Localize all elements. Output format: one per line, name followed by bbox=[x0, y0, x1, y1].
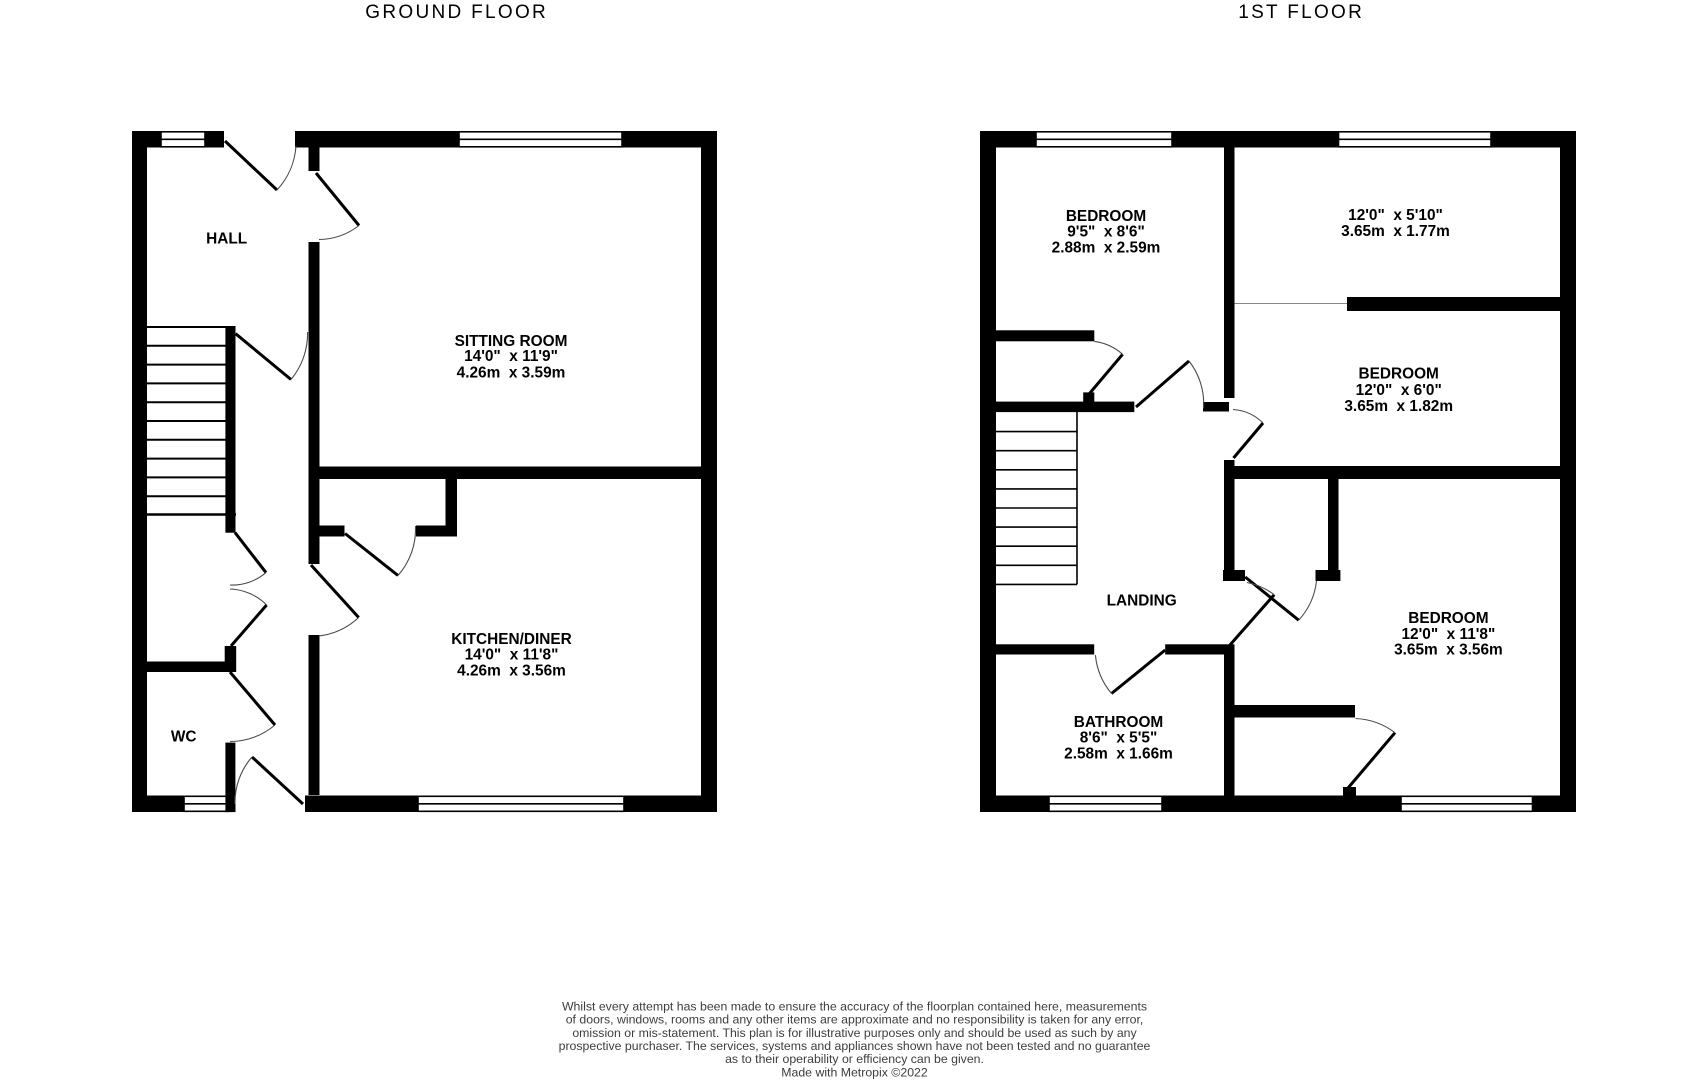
svg-text:2.88m x 2.59m: 2.88m x 2.59m bbox=[1052, 239, 1161, 256]
svg-text:HALL: HALL bbox=[206, 231, 247, 248]
svg-text:BEDROOM: BEDROOM bbox=[1066, 208, 1146, 225]
svg-text:Whilst every attempt has been: Whilst every attempt has been made to en… bbox=[562, 999, 1147, 1013]
svg-text:14'0" x 11'9": 14'0" x 11'9" bbox=[464, 348, 558, 365]
svg-text:9'5" x 8'6": 9'5" x 8'6" bbox=[1067, 223, 1145, 240]
svg-text:2.58m x 1.66m: 2.58m x 1.66m bbox=[1064, 745, 1173, 762]
svg-text:1ST FLOOR: 1ST FLOOR bbox=[1238, 2, 1364, 23]
svg-text:12'0" x 11'8": 12'0" x 11'8" bbox=[1401, 626, 1495, 643]
svg-text:4.26m x 3.59m: 4.26m x 3.59m bbox=[457, 364, 566, 381]
svg-text:Made with Metropix ©2022: Made with Metropix ©2022 bbox=[781, 1065, 928, 1079]
svg-text:as to their operability or eff: as to their operability or efficiency ca… bbox=[725, 1052, 984, 1066]
svg-text:KITCHEN/DINER: KITCHEN/DINER bbox=[451, 631, 572, 648]
svg-text:8'6" x 5'5": 8'6" x 5'5" bbox=[1080, 729, 1158, 746]
svg-text:LANDING: LANDING bbox=[1107, 593, 1177, 610]
svg-text:3.65m x 1.82m: 3.65m x 1.82m bbox=[1344, 398, 1453, 415]
svg-text:4.26m x 3.56m: 4.26m x 3.56m bbox=[457, 662, 566, 679]
svg-text:BEDROOM: BEDROOM bbox=[1359, 366, 1439, 383]
svg-text:WC: WC bbox=[171, 729, 197, 746]
svg-text:BEDROOM: BEDROOM bbox=[1408, 610, 1488, 627]
svg-text:omission or mis-statement. Thi: omission or mis-statement. This plan is … bbox=[572, 1026, 1137, 1040]
svg-text:3.65m x 1.77m: 3.65m x 1.77m bbox=[1341, 223, 1450, 240]
svg-text:14'0" x 11'8": 14'0" x 11'8" bbox=[465, 647, 559, 664]
svg-text:GROUND FLOOR: GROUND FLOOR bbox=[365, 2, 548, 23]
svg-text:12'0" x 5'10": 12'0" x 5'10" bbox=[1348, 207, 1443, 224]
svg-text:of doors, windows, rooms and a: of doors, windows, rooms and any other i… bbox=[566, 1013, 1144, 1027]
svg-text:12'0" x 6'0": 12'0" x 6'0" bbox=[1356, 382, 1442, 399]
svg-text:3.65m x 3.56m: 3.65m x 3.56m bbox=[1394, 642, 1503, 659]
svg-text:prospective purchaser. The ser: prospective purchaser. The services, sys… bbox=[559, 1039, 1151, 1053]
